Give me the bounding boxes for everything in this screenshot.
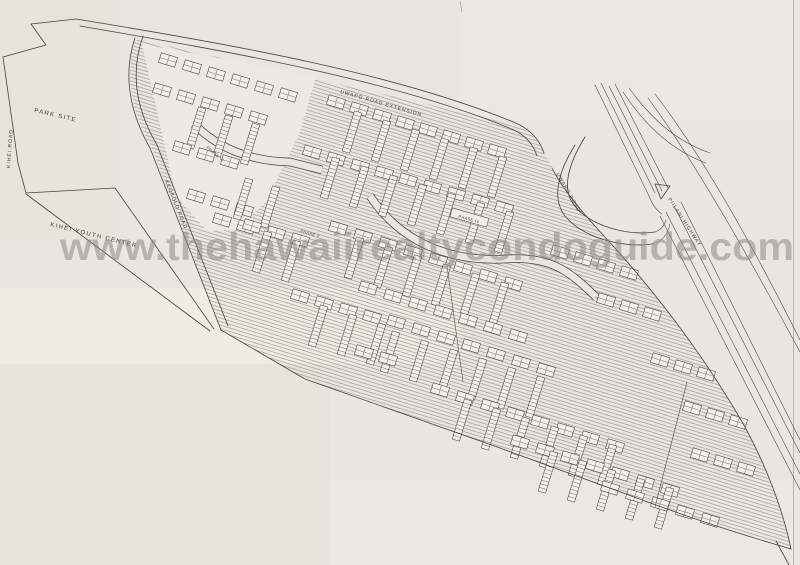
site-plan-scan: PHASE IV PHASE V PHASE VI PARK SITE KIHE… xyxy=(0,0,800,565)
site-plan-drawing: PHASE IV PHASE V PHASE VI PARK SITE KIHE… xyxy=(0,0,800,565)
watermark-text: www.thehawaiirealtycondoguide.com xyxy=(59,226,794,269)
